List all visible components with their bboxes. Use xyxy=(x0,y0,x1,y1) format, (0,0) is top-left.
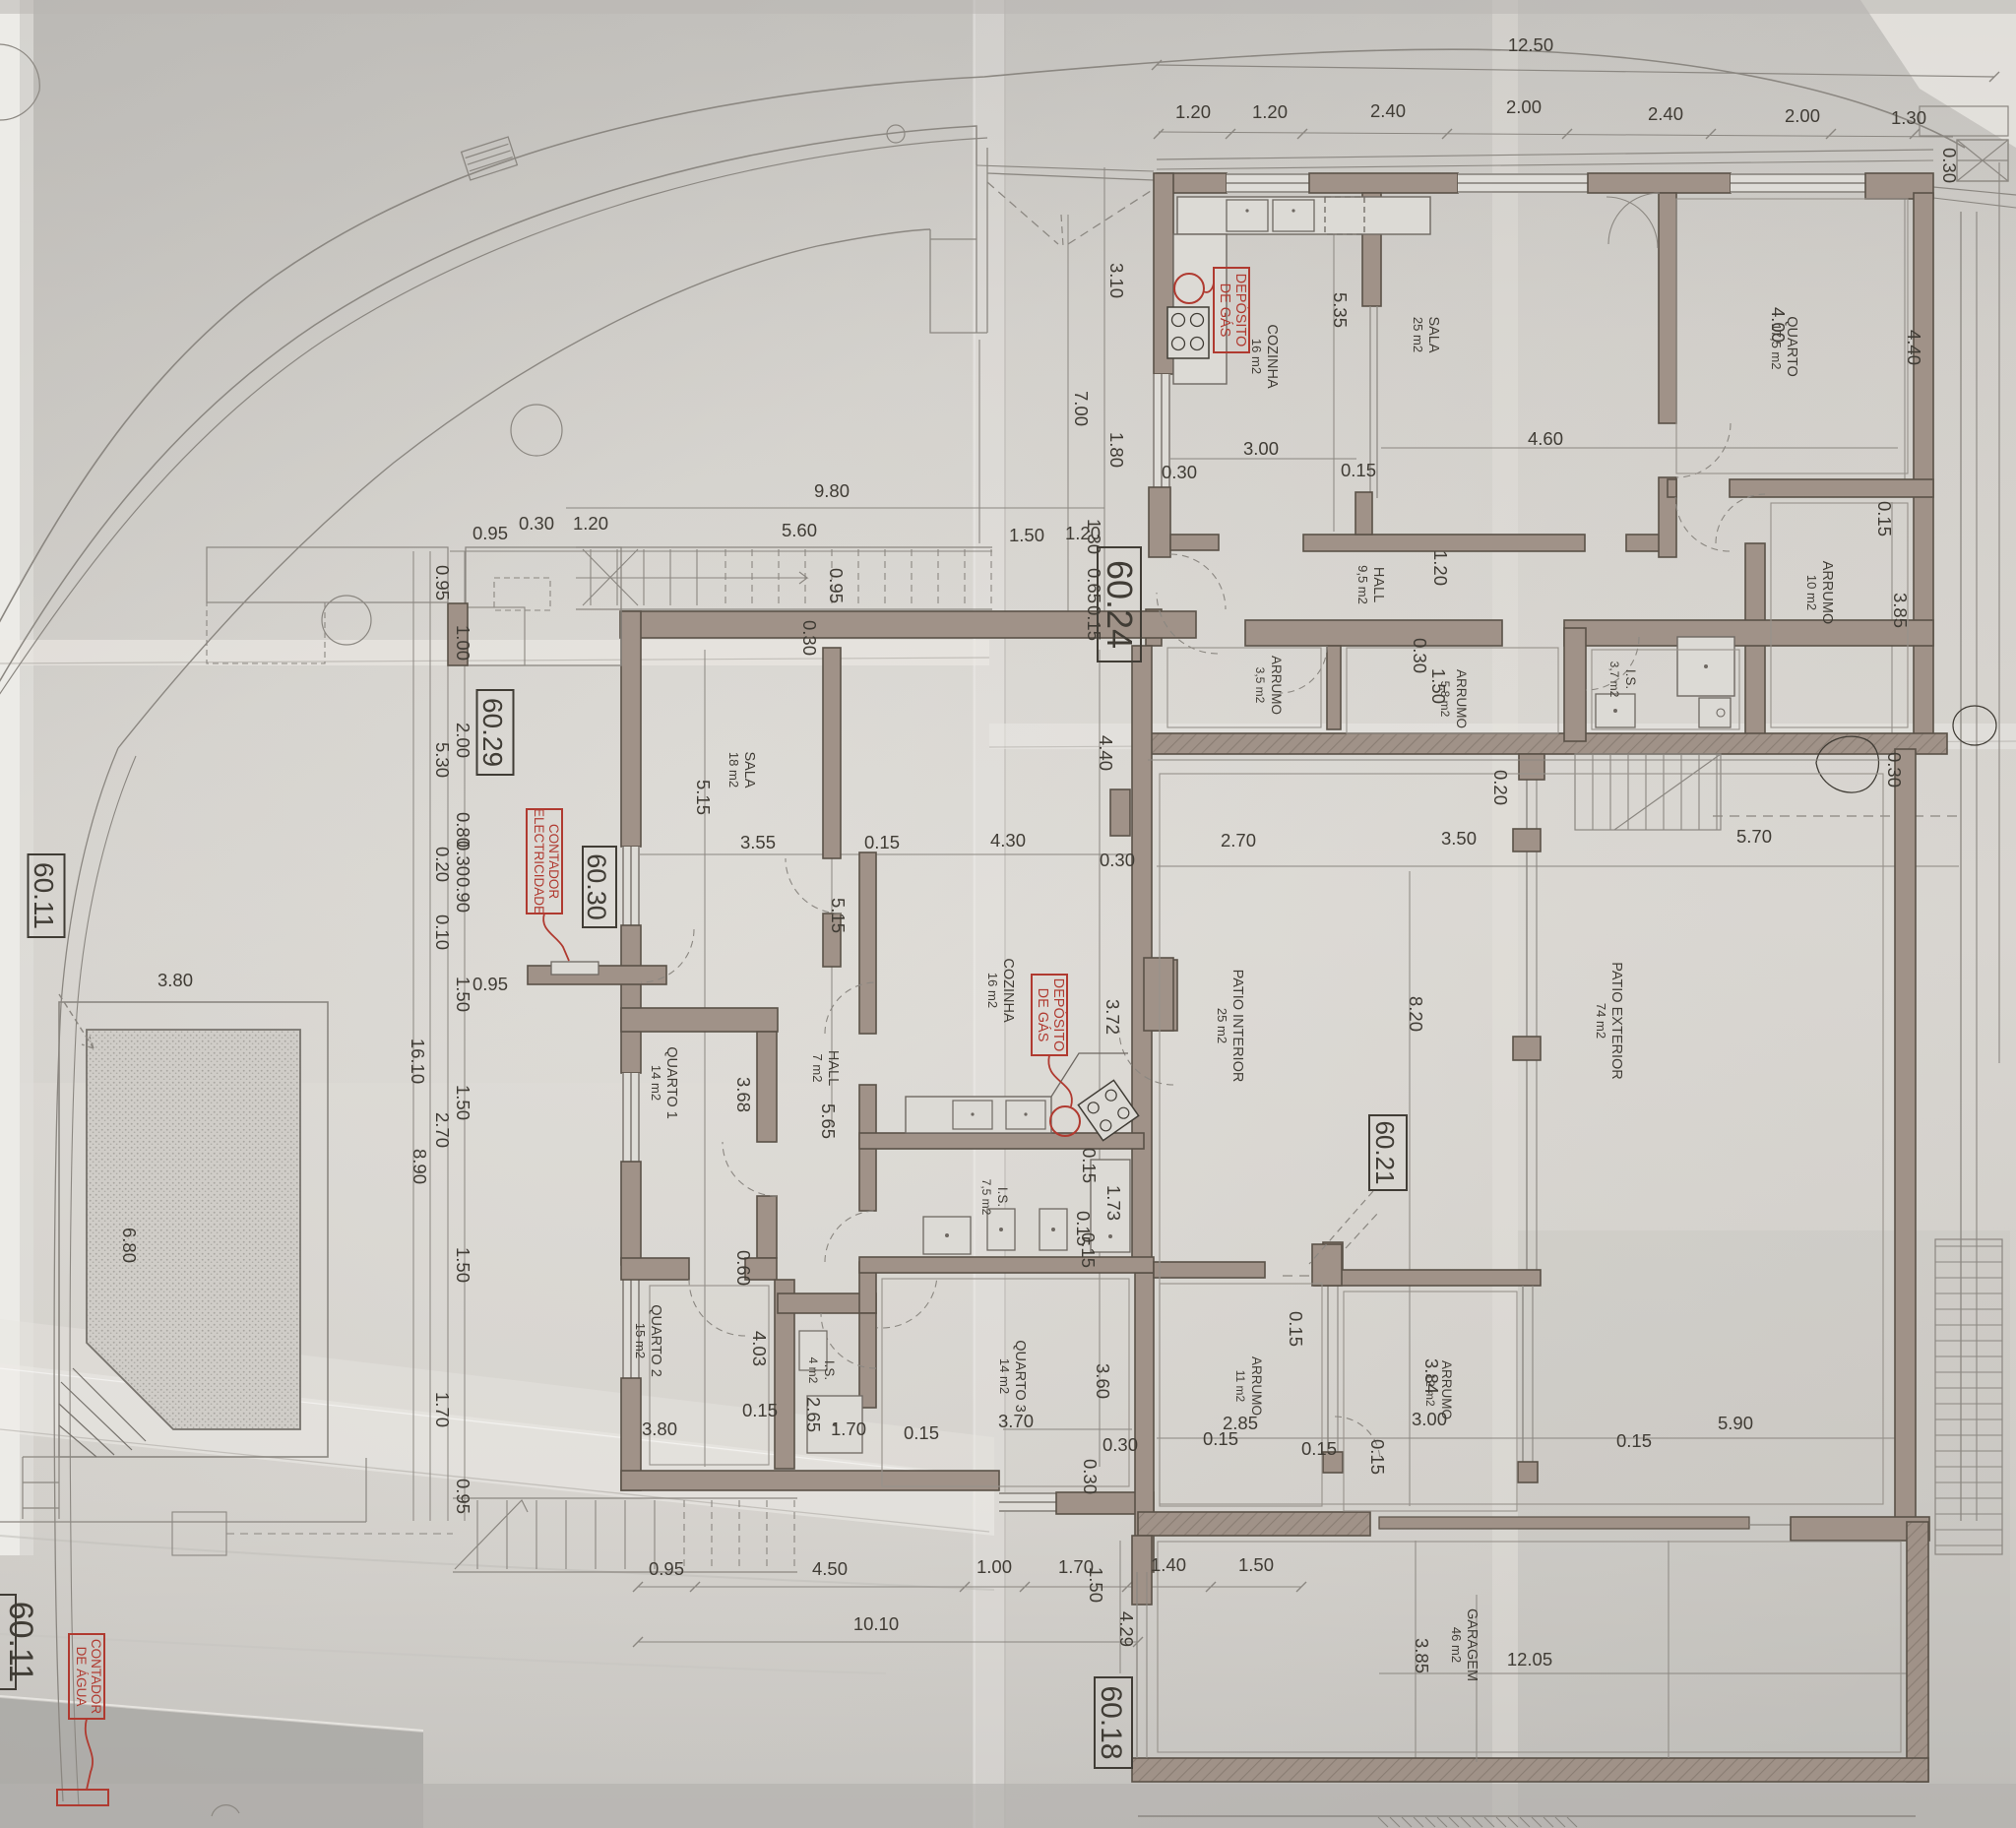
svg-text:1.00: 1.00 xyxy=(453,625,473,661)
svg-text:DEPÓSITO: DEPÓSITO xyxy=(1050,978,1067,1052)
svg-text:4.29: 4.29 xyxy=(1116,1611,1137,1647)
svg-text:10.10: 10.10 xyxy=(853,1613,899,1634)
svg-text:PATIO INTERIOR: PATIO INTERIOR xyxy=(1229,970,1245,1083)
svg-text:18 m2: 18 m2 xyxy=(726,752,741,788)
svg-text:1.70: 1.70 xyxy=(831,1418,866,1439)
svg-text:I.S.: I.S. xyxy=(1623,669,1638,689)
svg-text:0.30: 0.30 xyxy=(1102,1434,1138,1455)
svg-text:3.60: 3.60 xyxy=(1093,1363,1113,1399)
svg-text:0.95: 0.95 xyxy=(826,568,847,603)
svg-text:0.30: 0.30 xyxy=(1080,1459,1101,1494)
svg-text:1.30: 1.30 xyxy=(1084,519,1104,554)
svg-text:0.95: 0.95 xyxy=(649,1558,684,1579)
svg-text:12.05: 12.05 xyxy=(1507,1649,1552,1670)
svg-text:2.40: 2.40 xyxy=(1648,103,1683,124)
svg-text:2.00: 2.00 xyxy=(1785,105,1820,126)
svg-text:60.21: 60.21 xyxy=(1370,1120,1400,1184)
svg-text:PATIO EXTERIOR: PATIO EXTERIOR xyxy=(1608,962,1624,1080)
svg-text:0.30: 0.30 xyxy=(1162,462,1197,482)
svg-text:ARRUMO: ARRUMO xyxy=(1269,656,1284,715)
svg-text:0.15: 0.15 xyxy=(904,1422,939,1443)
svg-text:4.30: 4.30 xyxy=(990,830,1026,851)
svg-text:10 m2: 10 m2 xyxy=(1804,575,1819,610)
svg-text:HALL: HALL xyxy=(1370,567,1386,602)
svg-text:1.20: 1.20 xyxy=(1252,101,1288,122)
svg-text:25 m2: 25 m2 xyxy=(1215,1008,1229,1043)
svg-text:5.15: 5.15 xyxy=(828,898,849,933)
svg-text:COZINHA: COZINHA xyxy=(1264,324,1280,389)
svg-text:0.30: 0.30 xyxy=(519,513,554,534)
svg-text:3.55: 3.55 xyxy=(740,832,776,852)
svg-text:0.15: 0.15 xyxy=(1079,1148,1100,1183)
svg-text:0.20: 0.20 xyxy=(432,847,453,882)
svg-text:3.10: 3.10 xyxy=(1106,263,1127,298)
svg-text:14 m2: 14 m2 xyxy=(649,1065,663,1101)
svg-text:25 m2: 25 m2 xyxy=(1411,317,1425,352)
svg-text:60.18: 60.18 xyxy=(1095,1685,1127,1759)
svg-text:SALA: SALA xyxy=(741,751,757,788)
svg-text:0.10: 0.10 xyxy=(432,914,453,950)
svg-text:5.35: 5.35 xyxy=(1330,292,1351,328)
svg-text:0.90: 0.90 xyxy=(453,877,473,913)
svg-text:0.65: 0.65 xyxy=(1084,568,1104,603)
svg-text:1.50: 1.50 xyxy=(1009,525,1044,545)
svg-text:3,7 m2: 3,7 m2 xyxy=(1607,662,1621,698)
svg-text:GARAGEM: GARAGEM xyxy=(1464,1608,1480,1681)
svg-text:0.30: 0.30 xyxy=(453,841,473,876)
svg-text:15 m2: 15 m2 xyxy=(633,1323,648,1358)
svg-text:0.15: 0.15 xyxy=(1341,460,1376,480)
svg-text:5.90: 5.90 xyxy=(1718,1413,1753,1433)
svg-text:1.50: 1.50 xyxy=(453,1247,473,1283)
svg-text:60.29: 60.29 xyxy=(477,698,508,767)
svg-text:2.00: 2.00 xyxy=(1506,96,1542,117)
svg-text:3,5 m2: 3,5 m2 xyxy=(1253,667,1267,704)
svg-text:0.15: 0.15 xyxy=(1073,1211,1094,1246)
svg-text:4.00: 4.00 xyxy=(1768,307,1789,343)
svg-text:5.70: 5.70 xyxy=(1736,826,1772,847)
svg-text:3.85: 3.85 xyxy=(1412,1638,1432,1673)
svg-text:DE GÁS: DE GÁS xyxy=(1035,988,1051,1042)
svg-text:2.65: 2.65 xyxy=(803,1397,824,1432)
svg-text:46 m2: 46 m2 xyxy=(1449,1627,1464,1663)
svg-text:14 m2: 14 m2 xyxy=(997,1358,1012,1394)
svg-text:3.70: 3.70 xyxy=(998,1411,1034,1431)
svg-text:1.20: 1.20 xyxy=(1175,101,1211,122)
svg-text:4.03: 4.03 xyxy=(749,1331,770,1366)
svg-text:I.S.: I.S. xyxy=(995,1187,1010,1207)
svg-text:3.00: 3.00 xyxy=(1243,438,1279,459)
svg-text:4.40: 4.40 xyxy=(1904,330,1924,365)
svg-text:5.65: 5.65 xyxy=(818,1103,839,1139)
svg-text:1.70: 1.70 xyxy=(432,1392,453,1427)
svg-text:0.30: 0.30 xyxy=(1939,148,1960,183)
svg-text:0.15: 0.15 xyxy=(864,832,900,852)
svg-text:SALA: SALA xyxy=(1425,316,1441,352)
svg-text:3.85: 3.85 xyxy=(1890,593,1911,628)
svg-text:3.80: 3.80 xyxy=(157,970,193,990)
svg-text:60.11: 60.11 xyxy=(2,1602,39,1683)
svg-text:1.50: 1.50 xyxy=(453,977,473,1012)
svg-text:2.70: 2.70 xyxy=(432,1112,453,1148)
svg-text:QUARTO 3: QUARTO 3 xyxy=(1012,1340,1028,1413)
svg-text:74 m2: 74 m2 xyxy=(1594,1003,1608,1039)
svg-text:0.15: 0.15 xyxy=(1616,1430,1652,1451)
svg-text:4 m2: 4 m2 xyxy=(806,1357,820,1384)
svg-text:0.15: 0.15 xyxy=(1286,1311,1306,1347)
svg-text:0.95: 0.95 xyxy=(432,565,453,600)
svg-text:60.30: 60.30 xyxy=(582,853,611,920)
svg-text:0.30: 0.30 xyxy=(799,620,820,656)
svg-text:0.95: 0.95 xyxy=(453,1479,473,1514)
svg-text:12.50: 12.50 xyxy=(1508,34,1553,55)
svg-text:1.80: 1.80 xyxy=(1106,432,1127,468)
svg-text:ELECTRICIDADE: ELECTRICIDADE xyxy=(532,808,546,914)
svg-text:9.80: 9.80 xyxy=(814,480,850,501)
svg-text:0.20: 0.20 xyxy=(1490,770,1511,805)
svg-text:16 m2: 16 m2 xyxy=(1249,339,1264,374)
svg-text:HALL: HALL xyxy=(825,1050,841,1086)
svg-text:ARRUMO: ARRUMO xyxy=(1249,1356,1264,1416)
svg-text:16 m2: 16 m2 xyxy=(985,973,1000,1008)
svg-text:16.10: 16.10 xyxy=(408,1039,428,1084)
svg-text:3.00: 3.00 xyxy=(1412,1409,1447,1429)
svg-text:DEPÓSITO: DEPÓSITO xyxy=(1232,274,1249,347)
svg-text:3.68: 3.68 xyxy=(733,1077,754,1112)
svg-text:3.72: 3.72 xyxy=(1102,999,1123,1035)
svg-text:11 m2: 11 m2 xyxy=(1233,1370,1247,1403)
svg-text:7.00: 7.00 xyxy=(1071,391,1092,426)
svg-text:2.70: 2.70 xyxy=(1221,830,1256,851)
svg-text:COZINHA: COZINHA xyxy=(1000,958,1016,1023)
svg-text:0.30: 0.30 xyxy=(1100,850,1135,870)
svg-text:DE ÁGUA: DE ÁGUA xyxy=(74,1647,89,1707)
svg-text:1.20: 1.20 xyxy=(1430,550,1451,586)
svg-text:7 m2: 7 m2 xyxy=(810,1054,825,1083)
svg-text:ARRUMO: ARRUMO xyxy=(1819,561,1835,624)
svg-text:0.15: 0.15 xyxy=(1301,1438,1337,1459)
svg-text:4.50: 4.50 xyxy=(812,1558,848,1579)
svg-text:1.50: 1.50 xyxy=(1238,1554,1274,1575)
svg-text:0.60: 0.60 xyxy=(733,1250,754,1286)
svg-text:8.90: 8.90 xyxy=(409,1149,430,1184)
svg-text:0.15: 0.15 xyxy=(1874,501,1895,536)
svg-text:0.15: 0.15 xyxy=(1367,1439,1388,1475)
svg-text:0.15: 0.15 xyxy=(1084,605,1104,641)
svg-text:0.95: 0.95 xyxy=(472,523,508,543)
svg-text:3.50: 3.50 xyxy=(1441,828,1477,849)
svg-text:5.60: 5.60 xyxy=(782,520,817,540)
svg-text:4.60: 4.60 xyxy=(1528,428,1563,449)
svg-text:3.84: 3.84 xyxy=(1421,1358,1442,1394)
svg-text:1.50: 1.50 xyxy=(1428,668,1449,704)
svg-text:1.20: 1.20 xyxy=(573,513,608,534)
svg-text:60.24: 60.24 xyxy=(1100,560,1140,649)
svg-text:0.30: 0.30 xyxy=(1410,638,1430,673)
svg-text:3.80: 3.80 xyxy=(642,1418,677,1439)
svg-text:2.40: 2.40 xyxy=(1370,100,1406,121)
svg-text:9,5 m2: 9,5 m2 xyxy=(1355,565,1370,604)
svg-text:1.40: 1.40 xyxy=(1151,1554,1186,1575)
svg-text:8.20: 8.20 xyxy=(1406,996,1426,1032)
svg-text:4.40: 4.40 xyxy=(1096,735,1116,771)
svg-text:7,5 m2: 7,5 m2 xyxy=(979,1179,993,1216)
svg-text:60.11: 60.11 xyxy=(29,862,59,929)
svg-text:1.30: 1.30 xyxy=(1891,107,1926,128)
svg-text:0.30: 0.30 xyxy=(1884,752,1905,788)
svg-text:CONTADOR: CONTADOR xyxy=(89,1639,103,1714)
svg-text:2.00: 2.00 xyxy=(453,723,473,758)
svg-text:6.80: 6.80 xyxy=(119,1228,140,1263)
svg-text:5.30: 5.30 xyxy=(432,742,453,778)
svg-text:0.15: 0.15 xyxy=(742,1400,778,1420)
svg-text:ARRUMO: ARRUMO xyxy=(1454,669,1469,728)
svg-text:0.95: 0.95 xyxy=(472,974,508,994)
svg-text:5.15: 5.15 xyxy=(693,780,714,815)
svg-text:I.S.: I.S. xyxy=(822,1360,837,1380)
svg-text:QUARTO 1: QUARTO 1 xyxy=(663,1046,679,1119)
svg-text:DE GÁS: DE GÁS xyxy=(1217,284,1233,338)
svg-text:1.73: 1.73 xyxy=(1103,1185,1124,1221)
svg-text:CONTADOR: CONTADOR xyxy=(546,824,561,899)
svg-text:2.85: 2.85 xyxy=(1223,1413,1258,1433)
svg-text:1.50: 1.50 xyxy=(1086,1567,1106,1603)
svg-text:1.50: 1.50 xyxy=(453,1085,473,1120)
svg-text:1.00: 1.00 xyxy=(976,1556,1012,1577)
svg-text:QUARTO 2: QUARTO 2 xyxy=(648,1304,663,1377)
